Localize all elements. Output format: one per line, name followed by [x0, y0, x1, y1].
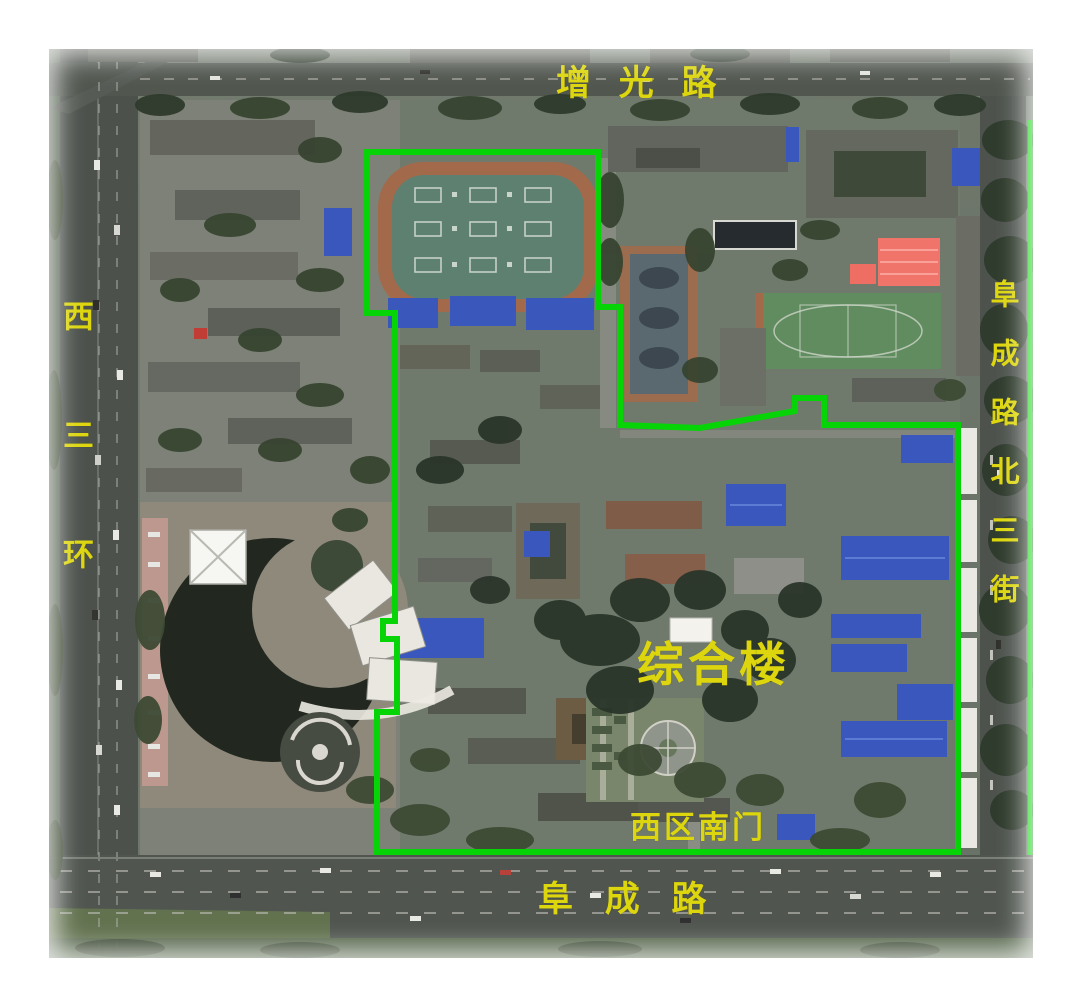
road-label-zengguang-road: 增 光 路 [556, 66, 725, 101]
map-screenshot: 增 光 路 西三环 阜成路北三街 阜 成 路 综合楼 西区南门 [0, 0, 1080, 1008]
east-field [755, 293, 941, 369]
gate-label-west-south-gate: 西区南门 [630, 812, 766, 843]
road-label-west-3rd-ring: 西三环 [60, 300, 91, 657]
playground [378, 162, 598, 312]
satellite-photo [0, 0, 1080, 1008]
road-label-fucheng-rd-north-3rd-st: 阜成路北三街 [987, 279, 1016, 633]
building-label-comprehensive-building: 综合楼 [637, 641, 790, 688]
basketball-courts [620, 246, 698, 402]
road-label-fucheng-road: 阜 成 路 [538, 882, 717, 917]
